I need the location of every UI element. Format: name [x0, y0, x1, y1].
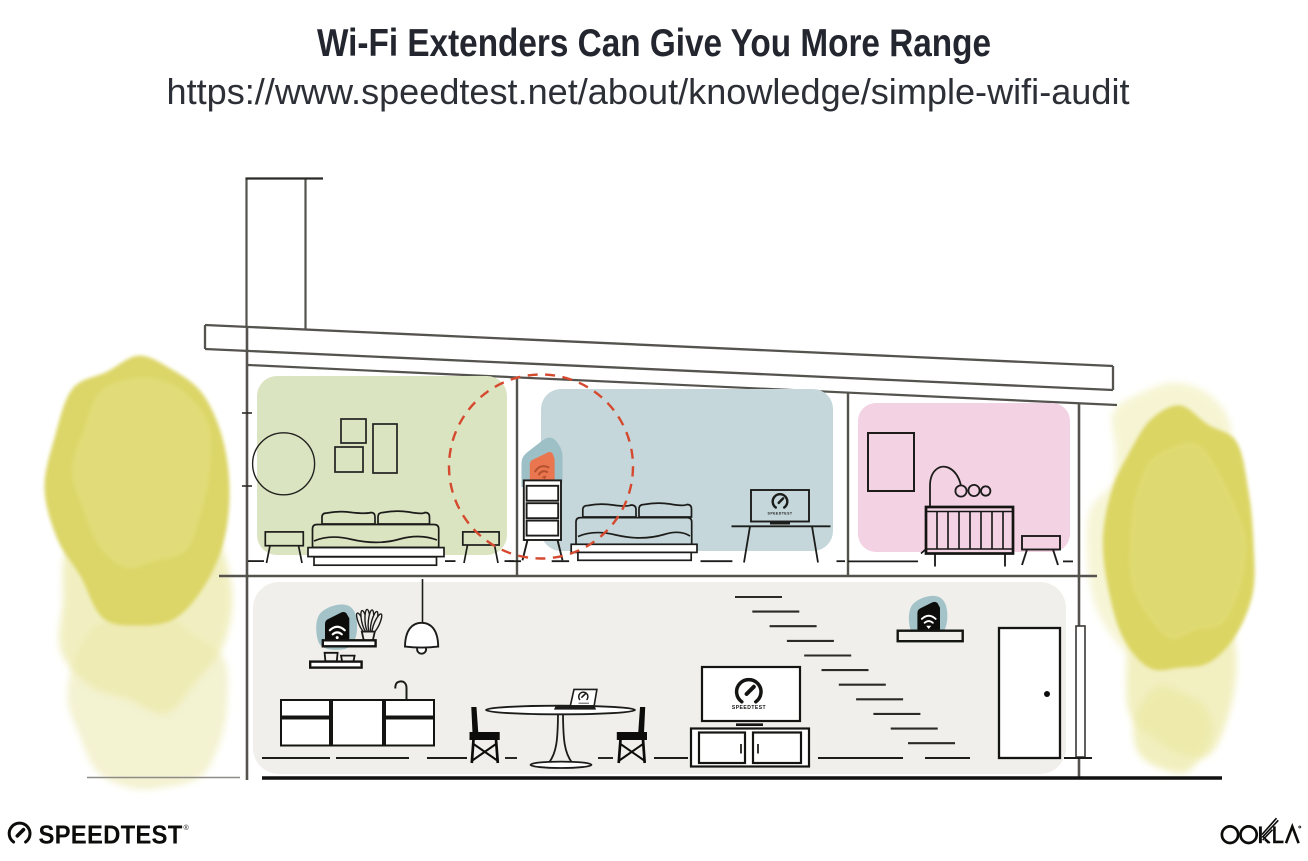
- svg-text:https://www.speedtest.net/abou: https://www.speedtest.net/about/knowledg…: [167, 71, 1130, 112]
- svg-text:®: ®: [184, 824, 190, 832]
- svg-text:SPEEDTEST: SPEEDTEST: [732, 705, 766, 711]
- svg-text:Wi-Fi Extenders Can Give You M: Wi-Fi Extenders Can Give You More Range: [317, 22, 991, 65]
- svg-text:SPEEDTEST: SPEEDTEST: [39, 822, 183, 850]
- svg-text:SPEEDTEST: SPEEDTEST: [768, 512, 793, 516]
